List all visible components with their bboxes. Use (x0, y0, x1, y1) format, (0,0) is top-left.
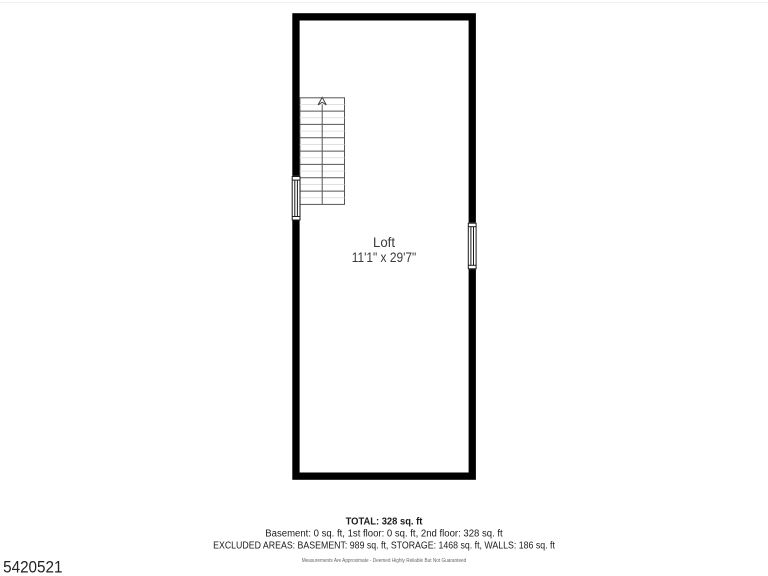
svg-text:11'1" x 29'7": 11'1" x 29'7" (352, 250, 417, 265)
svg-text:Measurements Are Approximate -: Measurements Are Approximate - Deemed Hi… (302, 558, 467, 564)
svg-text:TOTAL: 328 sq. ft: TOTAL: 328 sq. ft (346, 516, 423, 527)
svg-text:EXCLUDED AREAS: BASEMENT: 989: EXCLUDED AREAS: BASEMENT: 989 sq. ft, ST… (213, 541, 555, 552)
svg-text:Basement: 0 sq. ft, 1st floor:: Basement: 0 sq. ft, 1st floor: 0 sq. ft,… (265, 529, 503, 540)
svg-text:5420521: 5420521 (3, 557, 62, 576)
svg-text:Loft: Loft (373, 234, 395, 250)
